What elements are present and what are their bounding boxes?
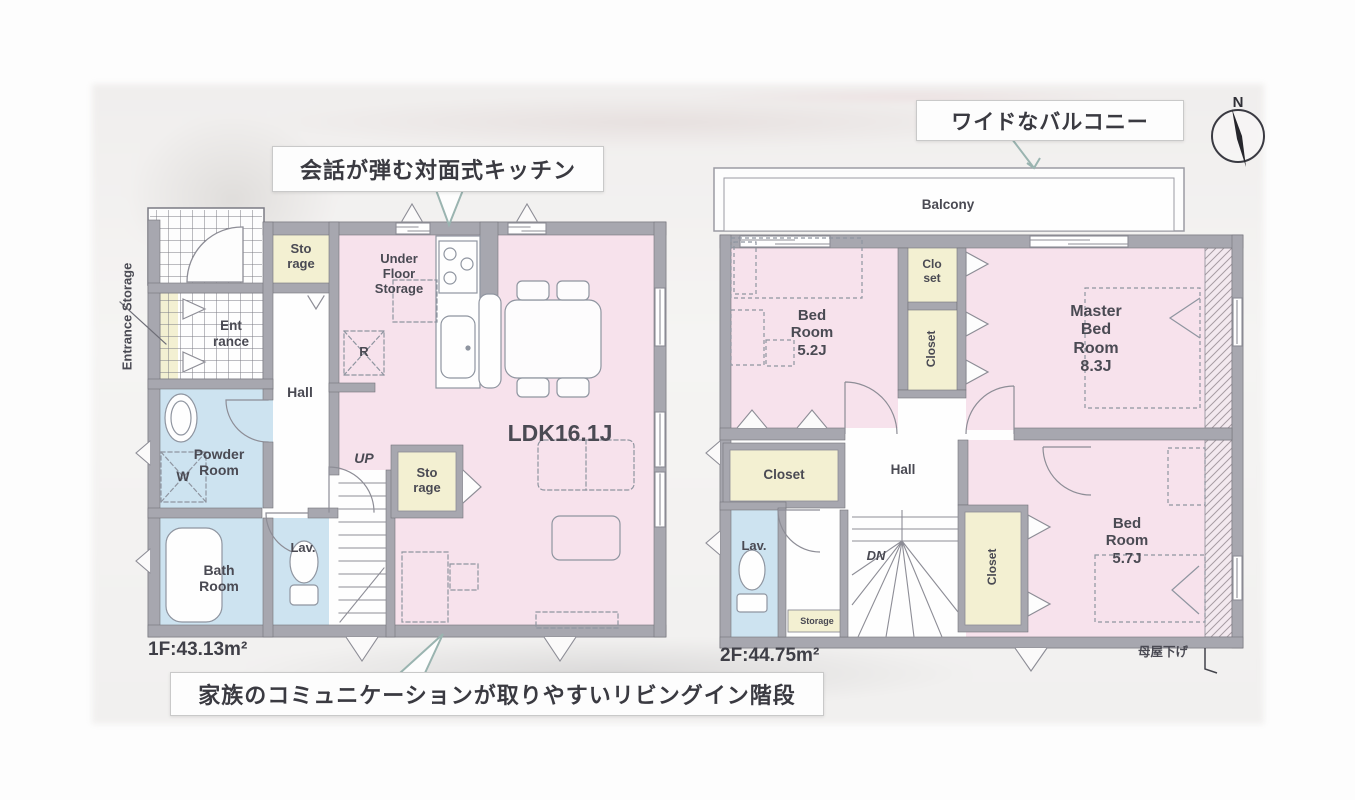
floorplan-image: 会話が弾む対面式キッチン ワイドなバルコニー 家族のコミュニケーションが取りやす… [0,0,1355,800]
floor1-plan [120,204,666,661]
compass [1212,109,1264,167]
toilet-2f [737,594,767,612]
callout-balcony: ワイドなバルコニー [916,100,1184,141]
stove [439,241,477,293]
closet-lower-room [965,512,1021,625]
floor2-sanitary [737,550,767,612]
toilet-1f [290,585,318,605]
bathtub [166,528,222,622]
kitchen-counter [479,294,501,388]
closet-left-room [730,450,838,501]
hatch-strip-bed2 [1205,440,1232,637]
stairs-callout-tail [400,634,443,673]
callout-kitchen: 会話が弾む対面式キッチン [272,146,604,192]
hatch-strip-master [1205,248,1232,428]
dining-table [505,300,601,378]
floor1-rooms [148,208,666,637]
floor2-plan [706,168,1243,673]
storage-mid-room [398,452,456,511]
kitchen-callout-tail [436,190,463,225]
callout-stairs: 家族のコミュニケーションが取りやすいリビングイン階段 [170,672,824,716]
balcony-callout-tail [1012,139,1040,168]
moyasage-line [1205,648,1217,673]
balcony [714,168,1184,231]
